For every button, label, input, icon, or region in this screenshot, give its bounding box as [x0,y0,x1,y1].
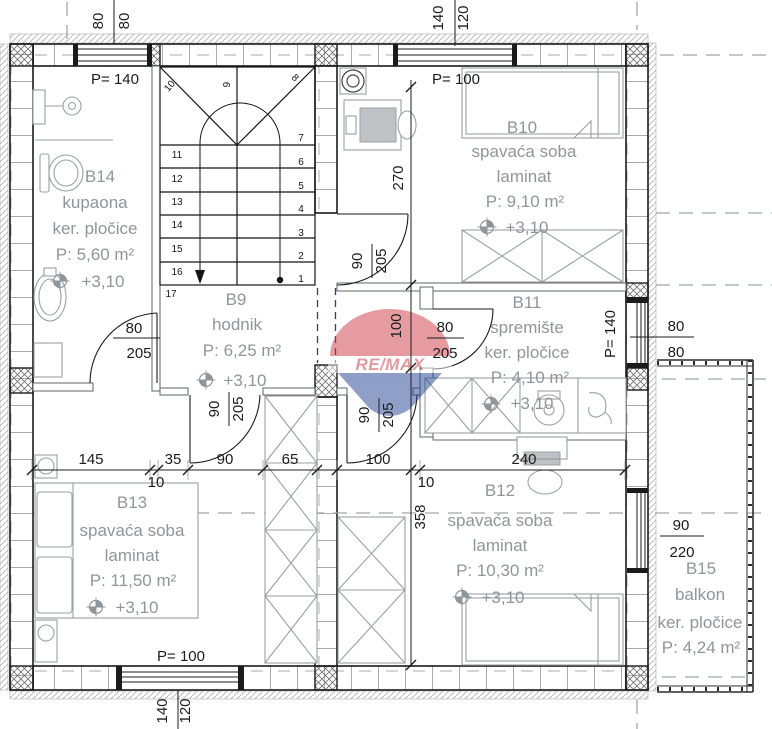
dim-window-tr-a: 140 [430,5,447,30]
window-label-top-right: P= 100 [432,71,480,88]
wardrobe-icon [338,517,405,663]
dim-door-b13-a: 90 [206,401,223,418]
stair-numbers: 1 2 3 4 5 6 7 8 9 10 11 12 13 14 15 16 1… [162,72,304,300]
dim-35: 35 [165,451,182,468]
room-level: +3,10 [505,218,548,237]
chair-icon [398,111,416,139]
dim-window-bottom-a: 140 [154,698,171,723]
dim-door-b10-b: 205 [373,248,390,273]
stair-number: 15 [171,244,183,255]
window-label-top-left: P= 140 [91,71,139,88]
level-marker-icon [197,371,216,390]
dim-door-b13-b: 205 [230,396,247,421]
stair-start-dot [277,277,283,283]
stair-number: 6 [298,157,304,168]
room-label-b12: B12 spavaća soba laminat P: 10,30 m² +3,… [448,481,553,607]
room-level: +3,10 [81,272,124,291]
stair-number: 1 [298,274,304,285]
window-top-left [73,44,152,66]
room-id: B15 [686,559,716,578]
dim-window-tr-b: 120 [455,5,472,30]
chair-icon [528,470,562,494]
room-floor: ker. pločice [52,219,137,238]
stair-number: 12 [171,174,183,185]
dim-window-tl-b: 80 [116,13,133,30]
dim-door-b12-a: 90 [356,407,373,424]
room-area: P: 10,30 m² [456,561,544,580]
room-floor: laminat [497,167,552,186]
floor-plan-drawing: 1 2 3 4 5 6 7 8 9 10 11 12 13 14 15 16 1… [0,0,772,729]
room-floor: ker. pločice [484,343,569,362]
floor-plan-page: 1 2 3 4 5 6 7 8 9 10 11 12 13 14 15 16 1… [0,0,772,729]
dim-10: 10 [418,474,435,491]
room-area: P: 9,10 m² [486,192,565,211]
dim-145: 145 [78,451,103,468]
dim-100v: 100 [388,313,405,338]
stair-number: 11 [172,150,183,161]
window-label-bottom: P= 100 [157,648,205,665]
room-area: P: 5,60 m² [56,245,135,264]
room-name: kupaona [62,193,128,212]
room-name: spremište [490,318,564,337]
window-bottom [116,666,244,690]
stairs: 1 2 3 4 5 6 7 8 9 10 11 12 13 14 15 16 1… [160,67,315,300]
stair-number: 2 [298,251,304,262]
room-id: B13 [117,493,147,512]
dim-door-b14-b: 205 [126,345,151,362]
dim-65: 65 [282,451,299,468]
stair-number: 4 [298,204,304,215]
toilet-icon [40,154,83,192]
wardrobe-icon [265,396,317,663]
stair-number: 3 [298,228,304,239]
room-label-b9: B9 hodnik P: 6,25 m² +3,10 [197,290,282,390]
window-top-right [393,44,517,66]
dim-window-tl-a: 80 [90,13,107,30]
room-name: balkon [675,585,725,604]
room-name: spavaća soba [80,521,185,540]
room-name: spavaća soba [472,142,577,161]
stair-number: 13 [171,197,183,208]
room-id: B14 [85,167,115,186]
dim-window-right-b: 80 [668,344,685,361]
room-area: P: 4,10 m² [491,368,570,387]
dim-358: 358 [412,504,429,529]
balcony-door-right [627,488,648,573]
window-right [627,297,648,368]
dim-door-b11-a: 80 [437,319,454,336]
room-id: B11 [513,293,542,312]
dim-balcony-door-a: 90 [673,517,690,534]
room-area: P: 11,50 m² [90,571,177,590]
dim-10: 10 [148,474,165,491]
dim-270: 270 [390,165,407,190]
dim-door-b10-a: 90 [349,253,366,270]
room-level: +3,10 [510,394,553,413]
room-level: +3,10 [481,588,524,607]
stair-number: 14 [171,220,183,231]
room-id: B12 [485,481,515,500]
dim-door-b14-a: 80 [126,320,143,337]
room-level: +3,10 [223,371,266,390]
room-floor: laminat [473,536,528,555]
bath-cabinet [34,343,62,377]
stair-number: 16 [171,267,183,278]
dim-door-b11-b: 205 [432,345,457,362]
stair-number: 5 [298,181,304,192]
dim-window-right-a: 80 [668,318,685,335]
room-level: +3,10 [115,598,158,617]
room-id: B9 [226,290,247,309]
dim-240: 240 [511,451,536,468]
stair-number: 9 [222,81,233,88]
room-label-b15: B15 balkon ker. pločice P: 4,24 m² [657,559,742,657]
dim-door-b12-b: 205 [380,402,397,427]
wardrobe-icon [462,230,623,282]
desk-icon [344,100,416,150]
room-floor: ker. pločice [657,613,742,632]
room-name: hodnik [212,315,263,334]
stair-number: 7 [298,133,304,144]
stair-number: 10 [162,78,178,94]
bed-icon [462,68,623,138]
window-label-right: P= 140 [602,310,619,358]
room-area: P: 4,24 m² [662,638,741,657]
room-area: P: 6,25 m² [203,341,282,360]
dim-window-bottom-b: 120 [177,698,194,723]
room-floor: laminat [105,546,160,565]
stair-direction-arrow [195,270,205,284]
dim-100: 100 [365,451,390,468]
stair-number: 17 [165,289,177,300]
room-id: B10 [507,118,537,137]
room-name: spavaća soba [448,511,553,530]
dim-90: 90 [217,451,234,468]
